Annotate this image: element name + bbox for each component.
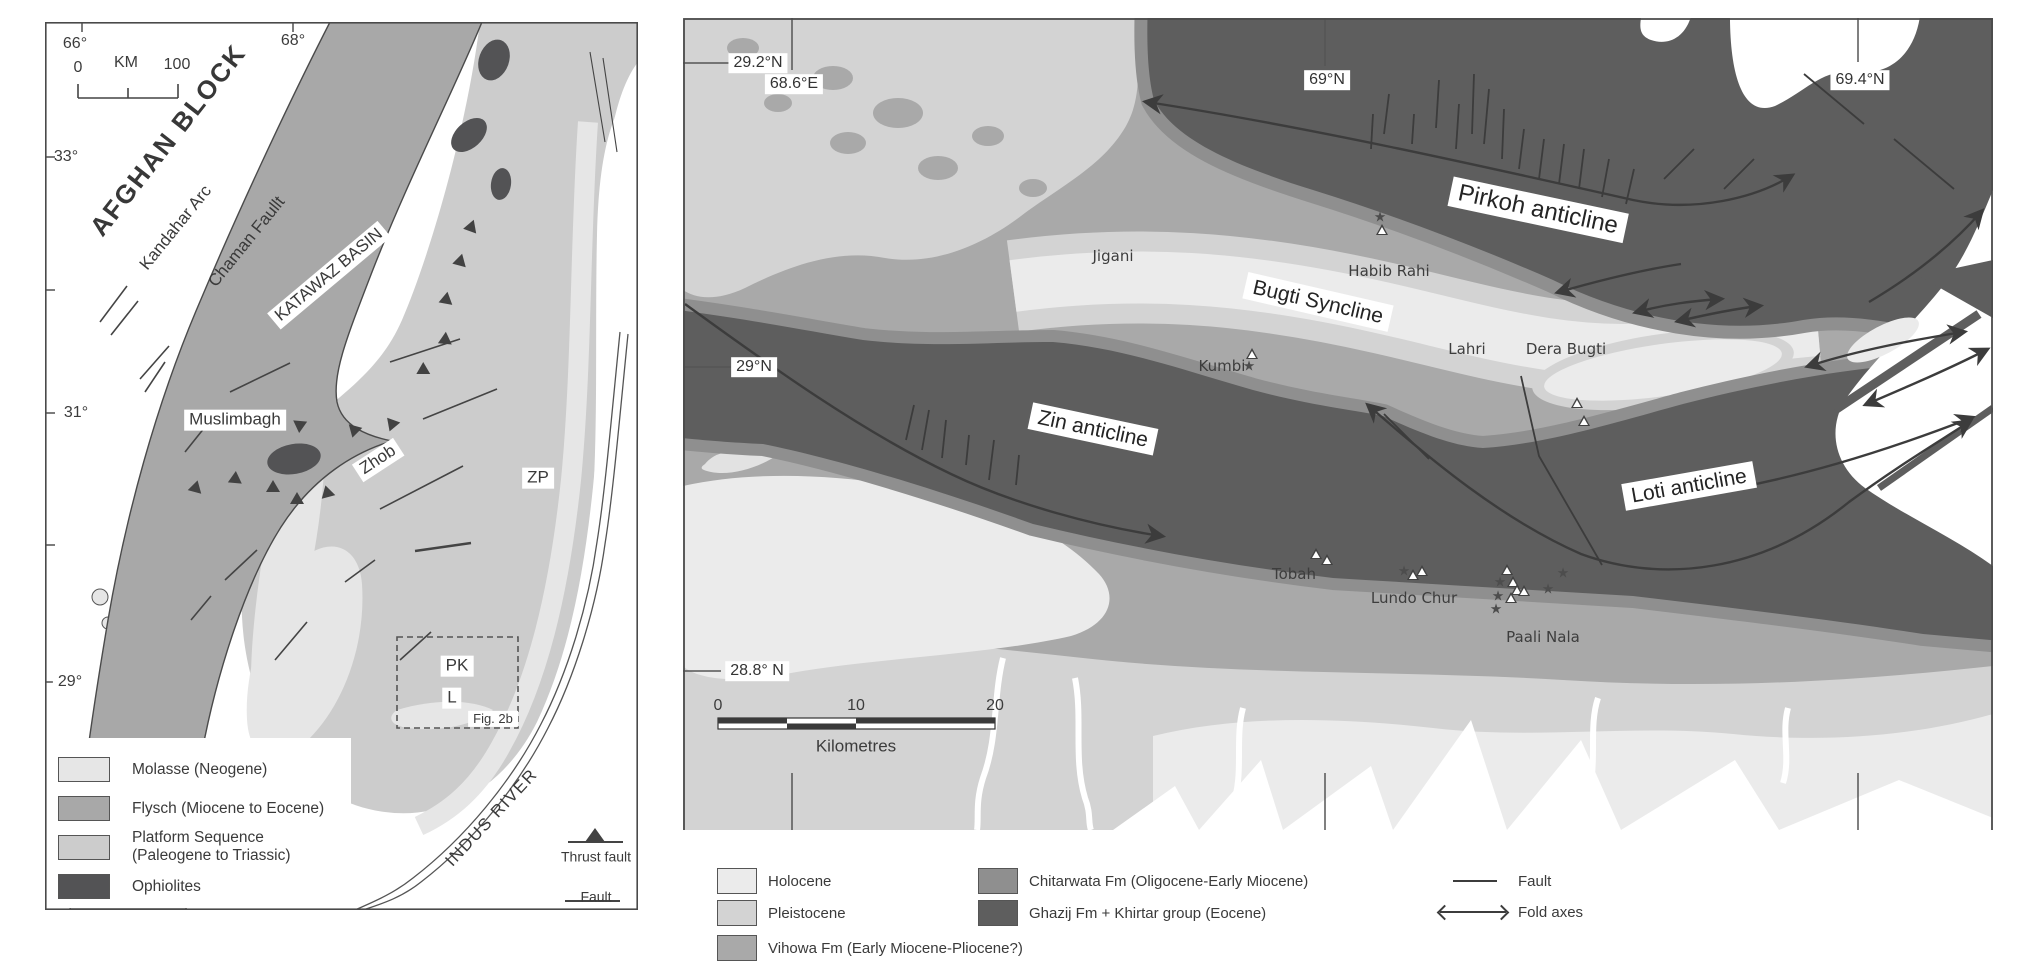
legend-label: Holocene — [768, 873, 831, 890]
legend-swatch — [717, 900, 757, 926]
legend-label: Fault — [1518, 873, 1551, 890]
legend-label: Fold axes — [1518, 904, 1583, 921]
legend-swatch — [717, 935, 757, 961]
detail-legend-item: Holocene — [717, 868, 831, 894]
detail-geology — [683, 18, 1993, 830]
fault-line-icon — [1453, 880, 1497, 883]
legend-label: Vihowa Fm (Early Miocene-Pliocene?) — [768, 940, 1023, 957]
detail-map-svg — [683, 18, 1993, 830]
detail-map-panel — [683, 18, 1993, 830]
regional-map-svg — [45, 22, 638, 910]
legend-label: Ghazij Fm + Khirtar group (Eocene) — [1029, 905, 1266, 922]
fold-axes-arrow-icon — [1440, 911, 1506, 913]
detail-legend-item: Ghazij Fm + Khirtar group (Eocene) — [978, 900, 1266, 926]
legend-swatch — [978, 868, 1018, 894]
legend-symbol-item: Fold axes — [1440, 903, 1583, 921]
figure-canvas: 66°68°0KM10033°31°29°AFGHAN BLOCKKandaha… — [0, 0, 2032, 974]
detail-scalebar — [718, 718, 995, 729]
legend-backdrop — [51, 738, 351, 908]
legend-symbol-item: Fault — [1453, 872, 1551, 890]
legend-label: Chitarwata Fm (Oligocene-Early Miocene) — [1029, 873, 1308, 890]
legend-label: Pleistocene — [768, 905, 846, 922]
legend-swatch — [978, 900, 1018, 926]
regional-map-panel — [45, 22, 638, 910]
detail-legend-item: Chitarwata Fm (Oligocene-Early Miocene) — [978, 868, 1308, 894]
legend-swatch — [717, 868, 757, 894]
detail-legend-item: Vihowa Fm (Early Miocene-Pliocene?) — [717, 935, 1023, 961]
detail-legend-item: Pleistocene — [717, 900, 846, 926]
